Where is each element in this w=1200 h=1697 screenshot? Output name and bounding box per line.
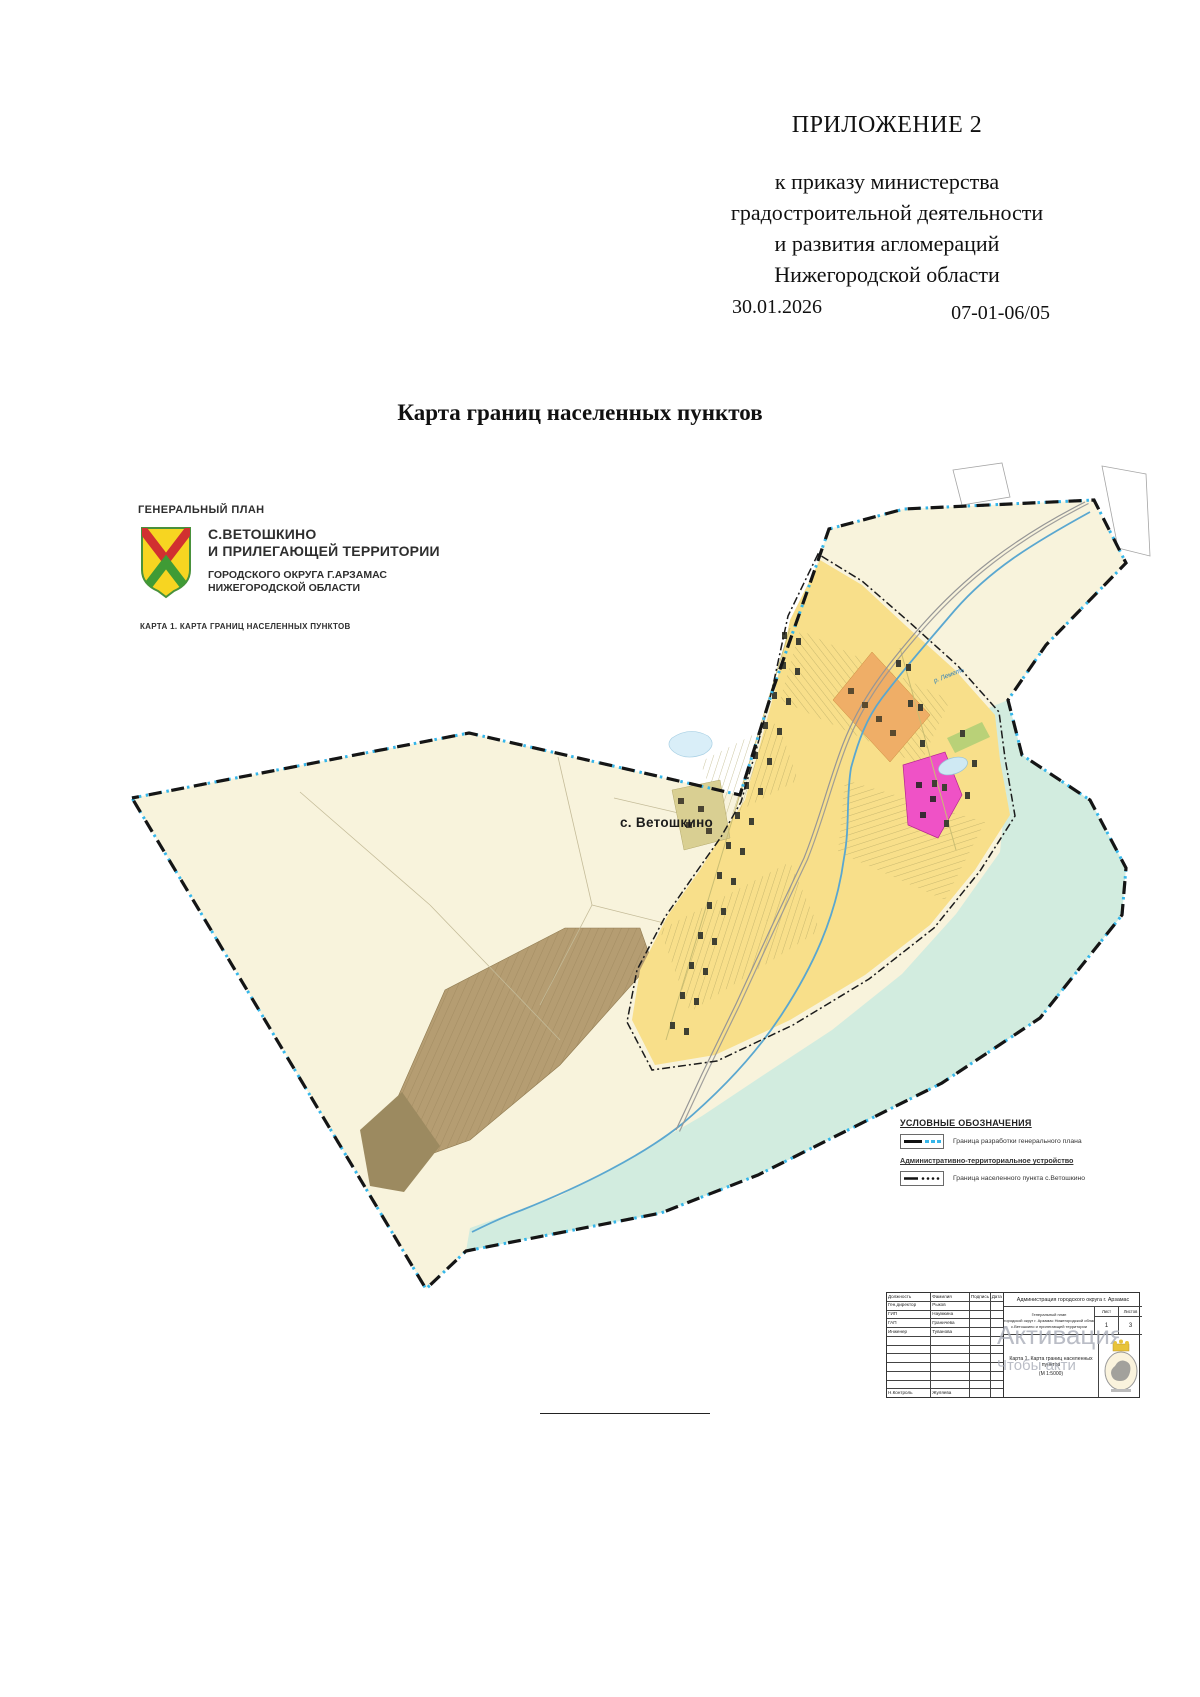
stamp-cell xyxy=(970,1302,991,1310)
order-reference-line: градостроительной деятельности xyxy=(686,197,1088,228)
stamp-row: Ген.директор Рыков xyxy=(887,1302,1003,1311)
stamp-col-header: Дата xyxy=(991,1293,1003,1301)
coat-of-arms-icon xyxy=(138,524,194,600)
order-meta: 30.01.2026 07-01-06/05 xyxy=(686,296,1088,326)
legend-item-label: Граница разработки генерального плана xyxy=(953,1138,1082,1145)
order-reference-line: Нижегородской области xyxy=(686,259,1088,290)
stamp-surname: Туванова xyxy=(931,1328,970,1336)
sheets-label: Листов xyxy=(1119,1307,1142,1317)
pond-northwest xyxy=(669,731,712,757)
stamp-cell xyxy=(970,1311,991,1319)
appendix-header: ПРИЛОЖЕНИЕ 2 к приказу министерства град… xyxy=(686,112,1088,326)
stamp-cell xyxy=(991,1302,1003,1310)
stamp-col-header: Подпись xyxy=(970,1293,991,1301)
order-reference: к приказу министерства градостроительной… xyxy=(686,166,1088,290)
stamp-cell xyxy=(991,1311,1003,1319)
stamp-surname: Жуляева xyxy=(931,1389,970,1397)
legend-subheading: Административно-территориальное устройст… xyxy=(900,1156,1150,1165)
document-page: ПРИЛОЖЕНИЕ 2 к приказу министерства град… xyxy=(0,0,1200,1697)
crest-icon xyxy=(1101,1338,1141,1394)
title-block-signatures: Должность Фамилия Подпись Дата Ген.дирек… xyxy=(887,1293,1004,1397)
appendix-label: ПРИЛОЖЕНИЕ 2 xyxy=(686,112,1088,139)
project-name: Генеральный план городской округ г. Арза… xyxy=(1004,1307,1095,1334)
stamp-map-title-text: Карта 1. Карта границ населенных пунктов xyxy=(1006,1356,1096,1369)
legend-item-label: Граница населенного пункта с.Ветошкино xyxy=(953,1175,1085,1182)
settlement-boundary-sample-icon xyxy=(900,1171,944,1186)
stamp-row: ГИП Наумкина xyxy=(887,1311,1003,1320)
stamp-position: ГИП xyxy=(887,1311,931,1319)
organization-name: Администрация городского округа г. Арзам… xyxy=(1004,1293,1142,1307)
legend-heading: УСЛОВНЫЕ ОБОЗНАЧЕНИЯ xyxy=(900,1118,1150,1128)
stamp-header-row: Должность Фамилия Подпись Дата xyxy=(887,1293,1003,1302)
order-number: 07-01-06/05 xyxy=(951,302,1050,325)
stamp-control-row: Н.Контроль Жуляева xyxy=(887,1389,1003,1397)
order-date: 30.01.2026 xyxy=(732,296,822,319)
stamp-col-header: Фамилия xyxy=(931,1293,970,1301)
footer-separator xyxy=(540,1413,710,1414)
plan-subtitle-line: НИЖЕГОРОДСКОЙ ОБЛАСТИ xyxy=(208,582,440,595)
project-line: с.Ветошкино и прилегающей территории xyxy=(1004,1324,1094,1330)
stamp-position: ГАП xyxy=(887,1319,931,1327)
plan-title-line: С.ВЕТОШКИНО xyxy=(208,526,440,543)
stamp-col-header: Должность xyxy=(887,1293,931,1301)
stamp-cell xyxy=(970,1319,991,1327)
stamp-row: ГАП Граничева xyxy=(887,1319,1003,1328)
sheet-label: Лист xyxy=(1095,1307,1118,1317)
page-title: Карта границ населенных пунктов xyxy=(180,400,980,426)
legend-item: Граница населенного пункта с.Ветошкино xyxy=(900,1171,1150,1186)
order-reference-line: к приказу министерства xyxy=(686,166,1088,197)
map-caption: КАРТА 1. КАРТА ГРАНИЦ НАСЕЛЕННЫХ ПУНКТОВ xyxy=(140,622,351,631)
plan-subtitle-line: ГОРОДСКОГО ОКРУГА Г.АРЗАМАС xyxy=(208,569,440,582)
stamp-cell xyxy=(970,1389,991,1397)
plan-header: ГЕНЕРАЛЬНЫЙ ПЛАН С.ВЕТОШКИНО И ПРИЛЕГАЮЩ… xyxy=(138,504,448,600)
stamp-position: Инженер xyxy=(887,1328,931,1336)
order-reference-line: и развития агломераций xyxy=(686,228,1088,259)
stamp-cell xyxy=(991,1328,1003,1336)
stamp-empty-row xyxy=(887,1346,1003,1355)
title-block-info: Администрация городского округа г. Арзам… xyxy=(1004,1293,1142,1397)
stamp-empty-row xyxy=(887,1337,1003,1346)
stamp-row: Инженер Туванова xyxy=(887,1328,1003,1337)
stamp-position: Ген.директор xyxy=(887,1302,931,1310)
stamp-map-title: Карта 1. Карта границ населенных пунктов… xyxy=(1004,1335,1099,1397)
sheet-value: 1 xyxy=(1095,1317,1118,1334)
sheet-column: Лист 1 xyxy=(1095,1307,1119,1334)
stamp-surname: Граничева xyxy=(931,1319,970,1327)
plan-kicker: ГЕНЕРАЛЬНЫЙ ПЛАН xyxy=(138,504,448,516)
sheets-value: 3 xyxy=(1119,1317,1142,1334)
stamp-surname: Наумкина xyxy=(931,1311,970,1319)
stamp-empty-row xyxy=(887,1372,1003,1381)
stamp-map-scale: (М 1:5000) xyxy=(1039,1371,1063,1377)
legend-item: Граница разработки генерального плана xyxy=(900,1134,1150,1149)
plan-boundary-sample-icon xyxy=(900,1134,944,1149)
sheets-column: Листов 3 xyxy=(1119,1307,1142,1334)
stamp-empty-row xyxy=(887,1363,1003,1372)
stamp-emblem xyxy=(1099,1335,1142,1397)
stamp-cell xyxy=(991,1319,1003,1327)
stamp-surname: Рыков xyxy=(931,1302,970,1310)
stamp-empty-row xyxy=(887,1381,1003,1390)
stamp-cell xyxy=(991,1389,1003,1397)
legend-panel: УСЛОВНЫЕ ОБОЗНАЧЕНИЯ Граница разработки … xyxy=(900,1118,1150,1186)
settlement-label: с. Ветошкино xyxy=(620,815,713,830)
plan-title-line: И ПРИЛЕГАЮЩЕЙ ТЕРРИТОРИИ xyxy=(208,543,440,560)
stamp-cell xyxy=(970,1328,991,1336)
title-block: Должность Фамилия Подпись Дата Ген.дирек… xyxy=(886,1292,1140,1398)
stamp-empty-row xyxy=(887,1354,1003,1363)
stamp-position: Н.Контроль xyxy=(887,1389,931,1397)
